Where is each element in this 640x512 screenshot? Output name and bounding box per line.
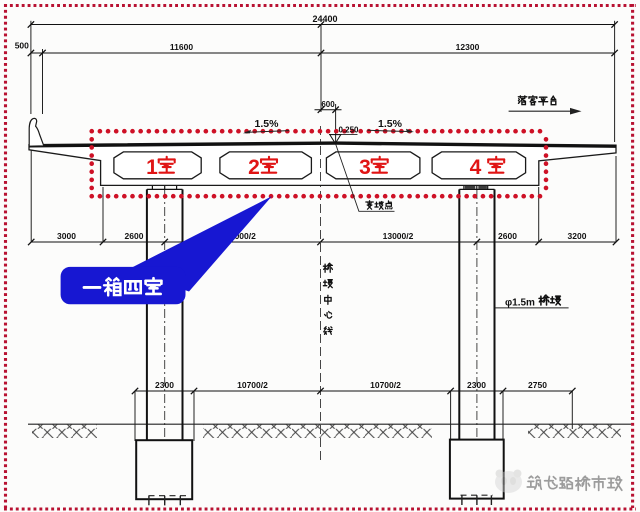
svg-text:1.5%: 1.5% xyxy=(255,118,280,130)
svg-text:2300: 2300 xyxy=(467,380,486,390)
svg-text:13000/2: 13000/2 xyxy=(383,231,414,241)
svg-text:1.5%: 1.5% xyxy=(378,118,403,130)
svg-text:11600: 11600 xyxy=(170,42,193,52)
svg-text:2600: 2600 xyxy=(498,231,517,241)
svg-text:10700/2: 10700/2 xyxy=(370,380,401,390)
svg-text:φ1.5m: φ1.5m xyxy=(505,297,535,308)
svg-text:3000: 3000 xyxy=(57,231,76,241)
svg-text:24400: 24400 xyxy=(312,14,337,24)
svg-text:3200: 3200 xyxy=(568,231,587,241)
svg-text:4: 4 xyxy=(470,156,482,179)
svg-text:1: 1 xyxy=(146,156,158,179)
svg-text:2: 2 xyxy=(248,156,260,179)
svg-text:2600: 2600 xyxy=(125,231,144,241)
svg-text:2750: 2750 xyxy=(528,380,547,390)
svg-text:2300: 2300 xyxy=(155,380,174,390)
svg-text:10700/2: 10700/2 xyxy=(237,380,268,390)
svg-text:600: 600 xyxy=(321,100,335,109)
svg-text:12300: 12300 xyxy=(456,42,480,52)
svg-text:500: 500 xyxy=(15,41,29,51)
svg-text:0.250: 0.250 xyxy=(338,126,359,135)
svg-text:3: 3 xyxy=(359,156,371,179)
